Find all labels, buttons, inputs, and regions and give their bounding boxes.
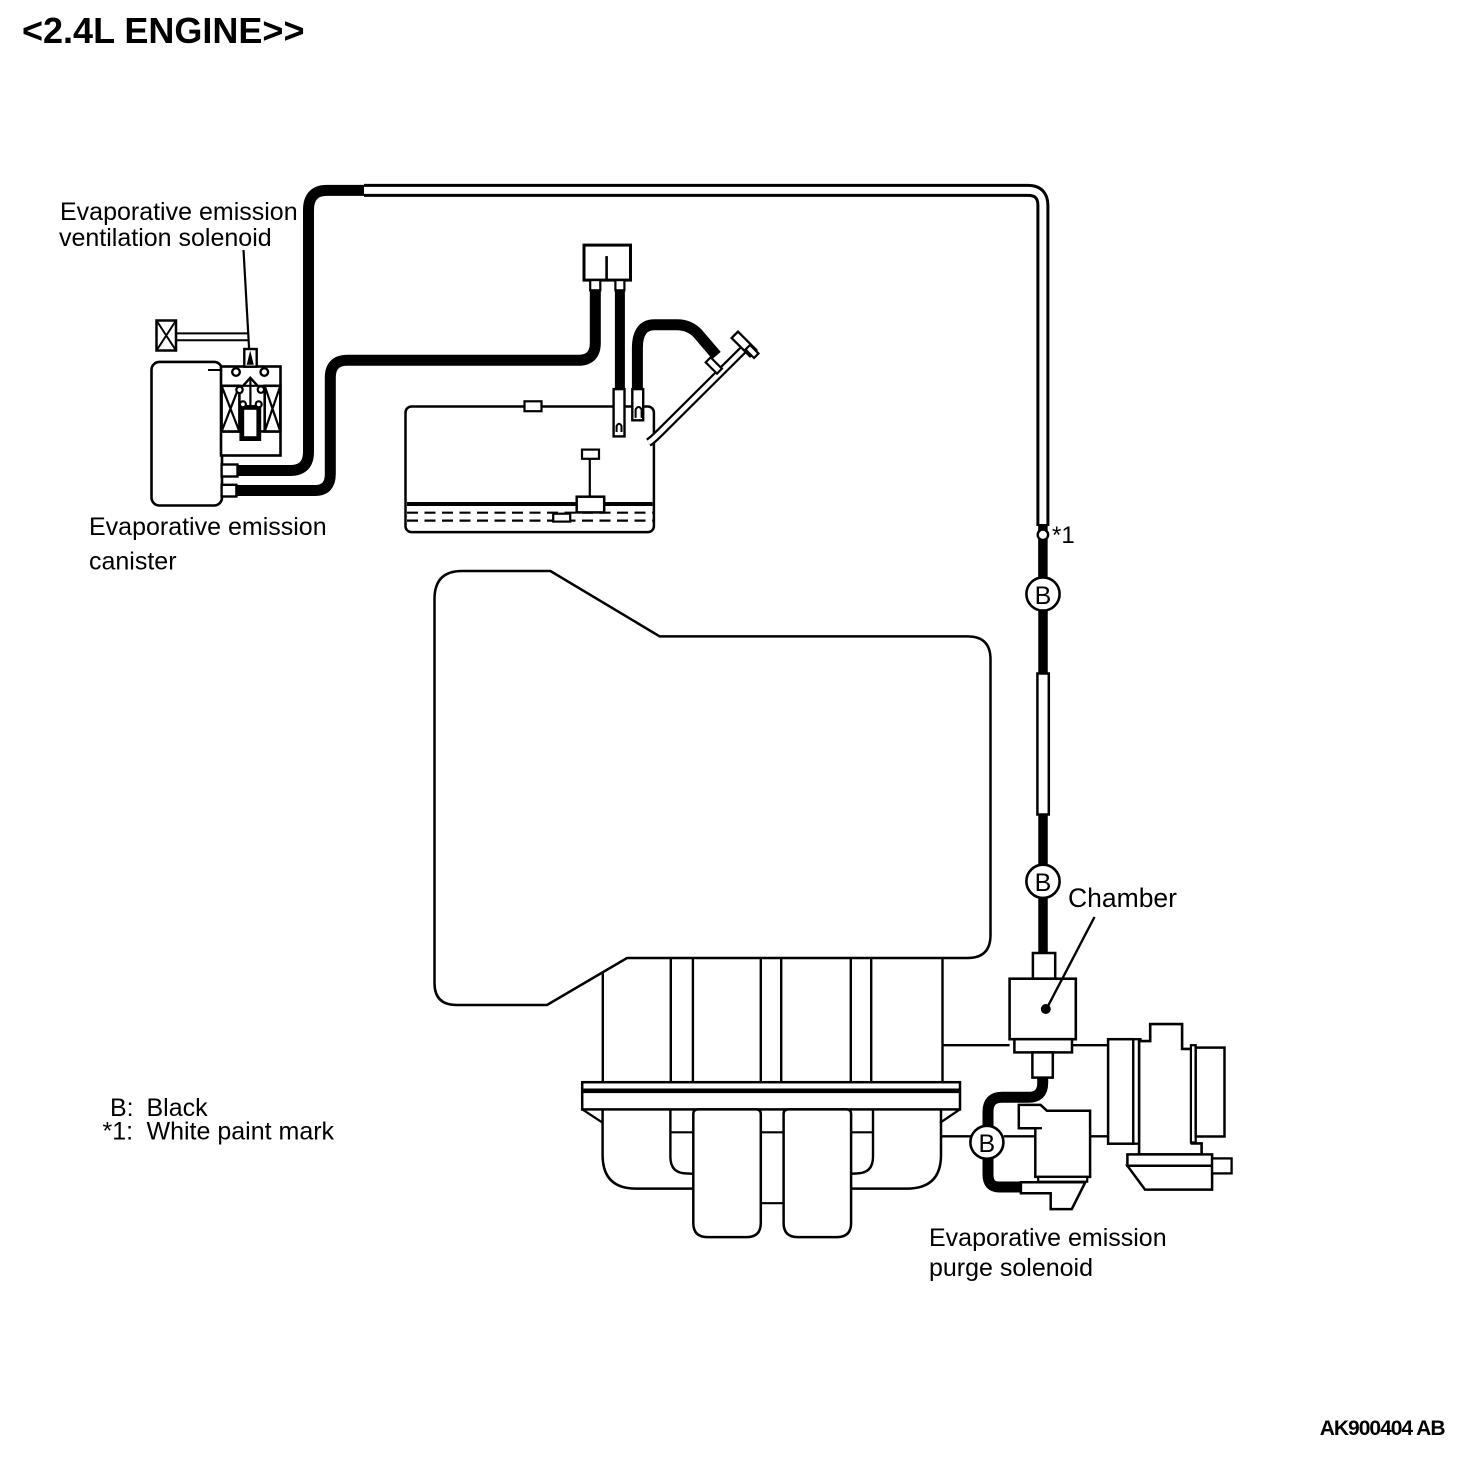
svg-text:B: B (1035, 869, 1052, 897)
svg-text:B: B (1035, 582, 1052, 610)
svg-text:B: B (979, 1130, 996, 1158)
svg-text:purge solenoid: purge solenoid (929, 1254, 1093, 1282)
svg-text:Evaporative emission: Evaporative emission (929, 1224, 1167, 1252)
svg-text:Chamber: Chamber (1068, 883, 1177, 913)
svg-text:<2.4L ENGINE>>: <2.4L ENGINE>> (22, 10, 304, 51)
svg-text:Evaporative emission: Evaporative emission (89, 513, 327, 541)
svg-text:*1:: *1: (103, 1118, 134, 1146)
svg-text:ventilation solenoid: ventilation solenoid (59, 224, 272, 252)
svg-text:*1: *1 (1052, 522, 1075, 549)
svg-text:White paint mark: White paint mark (147, 1118, 335, 1146)
svg-text:Evaporative emission: Evaporative emission (60, 198, 298, 226)
svg-text:AK900404 AB: AK900404 AB (1320, 1417, 1446, 1440)
svg-text:canister: canister (89, 548, 177, 576)
